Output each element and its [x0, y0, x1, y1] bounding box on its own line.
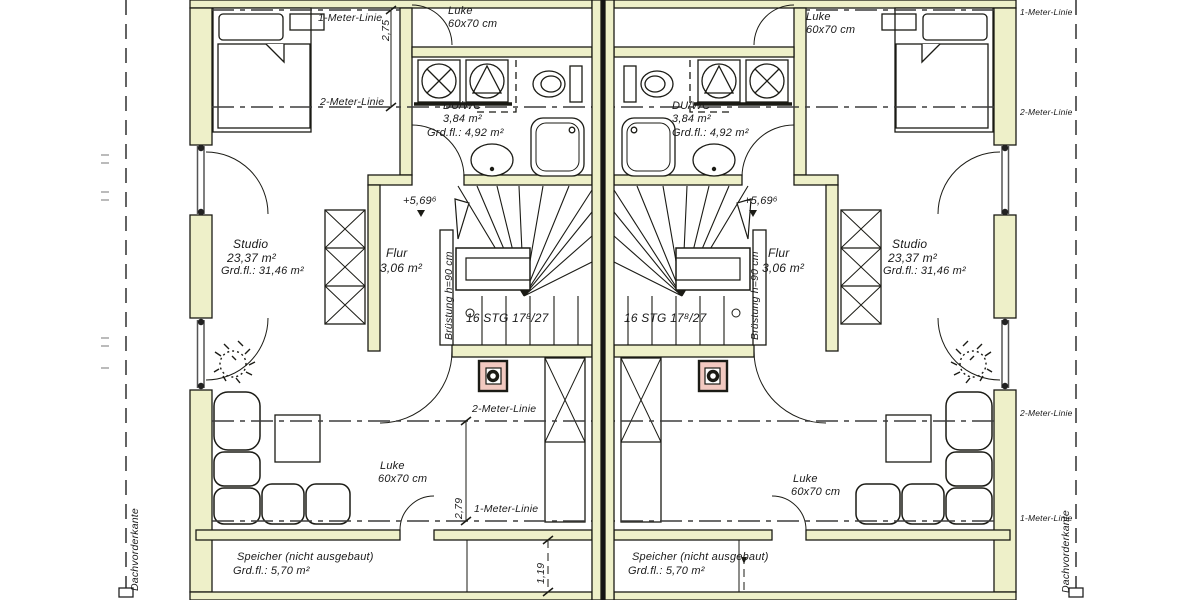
meter2-label-left-top: 2-Meter-Linie: [320, 97, 384, 108]
toilet: [533, 66, 582, 102]
sink: [471, 144, 513, 176]
speicher-grdfl-right: Grd.fl.: 5,70 m²: [628, 566, 705, 577]
studio-area-left: 23,37 m²: [227, 252, 276, 264]
speicher-grdfl-left: Grd.fl.: 5,70 m²: [233, 566, 310, 577]
bruestung-right: Brüstung h=90 cm: [750, 251, 761, 340]
table: [275, 415, 320, 462]
meter1-margin-top: 1-Meter-Linie: [1020, 8, 1073, 17]
roof-edge-label-right: Dachvorderkante: [1061, 510, 1072, 593]
elevation-markers: [417, 210, 757, 217]
speicher-name-left: Speicher (nicht ausgebaut): [237, 552, 374, 563]
luke-size-right-bot: 60x70 cm: [791, 487, 840, 498]
right-unit-mirrored: [614, 0, 1016, 600]
shower: [531, 118, 584, 176]
speicher-door-arc: [400, 496, 434, 530]
flur-name-left: Flur: [386, 247, 407, 259]
flur-area-right: 3,06 m²: [762, 262, 804, 274]
studio-area-right: 23,37 m²: [888, 252, 937, 264]
duwc-area-right: 3,84 m²: [672, 114, 711, 125]
speicher-name-right: Speicher (nicht ausgebaut): [632, 552, 769, 563]
bed: [213, 8, 311, 132]
duwc-grdfl-right: Grd.fl.: 4,92 m²: [672, 128, 749, 139]
bruestung-left: Brüstung h=90 cm: [444, 251, 455, 340]
studio-name-right: Studio: [892, 238, 927, 250]
elevation-right: +5,69⁶: [744, 196, 778, 207]
plant: [214, 341, 255, 383]
meter1-label-left-top: 1-Meter-Linie: [318, 13, 382, 24]
dim-275-label: 2,75: [381, 20, 392, 41]
luke-size-left-bot: 60x70 cm: [378, 474, 427, 485]
dim-119-label: 1,19: [536, 563, 547, 584]
wardrobe: [325, 210, 365, 324]
elevation-left: +5,69⁶: [403, 196, 437, 207]
dim-279-label: 2,79: [454, 498, 465, 519]
floor-plan: 1-Meter-Linie 2,75 Luke 60x70 cm 2-Meter…: [0, 0, 1200, 600]
duwc-area-left: 3,84 m²: [443, 114, 482, 125]
studio-grdfl-right: Grd.fl.: 31,46 m²: [883, 266, 966, 277]
stair-steps-right: 16 STG 17⁸/27: [624, 312, 707, 324]
plan-linework: [0, 0, 1200, 600]
flur-area-left: 3,06 m²: [380, 262, 422, 274]
meter2-label-left-bot: 2-Meter-Linie: [472, 404, 536, 415]
luke-size-right-top: 60x70 cm: [806, 25, 855, 36]
duwc-name-left: DU/WC: [443, 101, 481, 112]
luke-label-right-bot: Luke: [793, 474, 818, 485]
studio-name-left: Studio: [233, 238, 268, 250]
hatch-door-arc: [412, 5, 452, 45]
flur-name-right: Flur: [768, 247, 789, 259]
meter2-margin-bot: 2-Meter-Linie: [1020, 409, 1073, 418]
party-wall: [592, 0, 614, 600]
meter1-label-left-bot: 1-Meter-Linie: [474, 504, 538, 515]
duwc-grdfl-left: Grd.fl.: 4,92 m²: [427, 128, 504, 139]
chimney: [479, 361, 507, 391]
luke-label-left-top: Luke: [448, 6, 473, 17]
stair-steps-left: 16 STG 17⁸/27: [466, 312, 549, 324]
cabinet: [545, 358, 585, 522]
washer-dryer: [414, 60, 512, 104]
sofa: [214, 392, 350, 524]
roof-edge-label-left: Dachvorderkante: [130, 508, 141, 591]
studio-grdfl-left: Grd.fl.: 31,46 m²: [221, 266, 304, 277]
luke-label-left-bot: Luke: [380, 461, 405, 472]
luke-label-right-top: Luke: [806, 12, 831, 23]
luke-size-left-top: 60x70 cm: [448, 19, 497, 30]
flur-door-arc: [380, 351, 452, 423]
meter2-margin-top: 2-Meter-Linie: [1020, 108, 1073, 117]
duwc-name-right: DU/WC: [672, 101, 710, 112]
